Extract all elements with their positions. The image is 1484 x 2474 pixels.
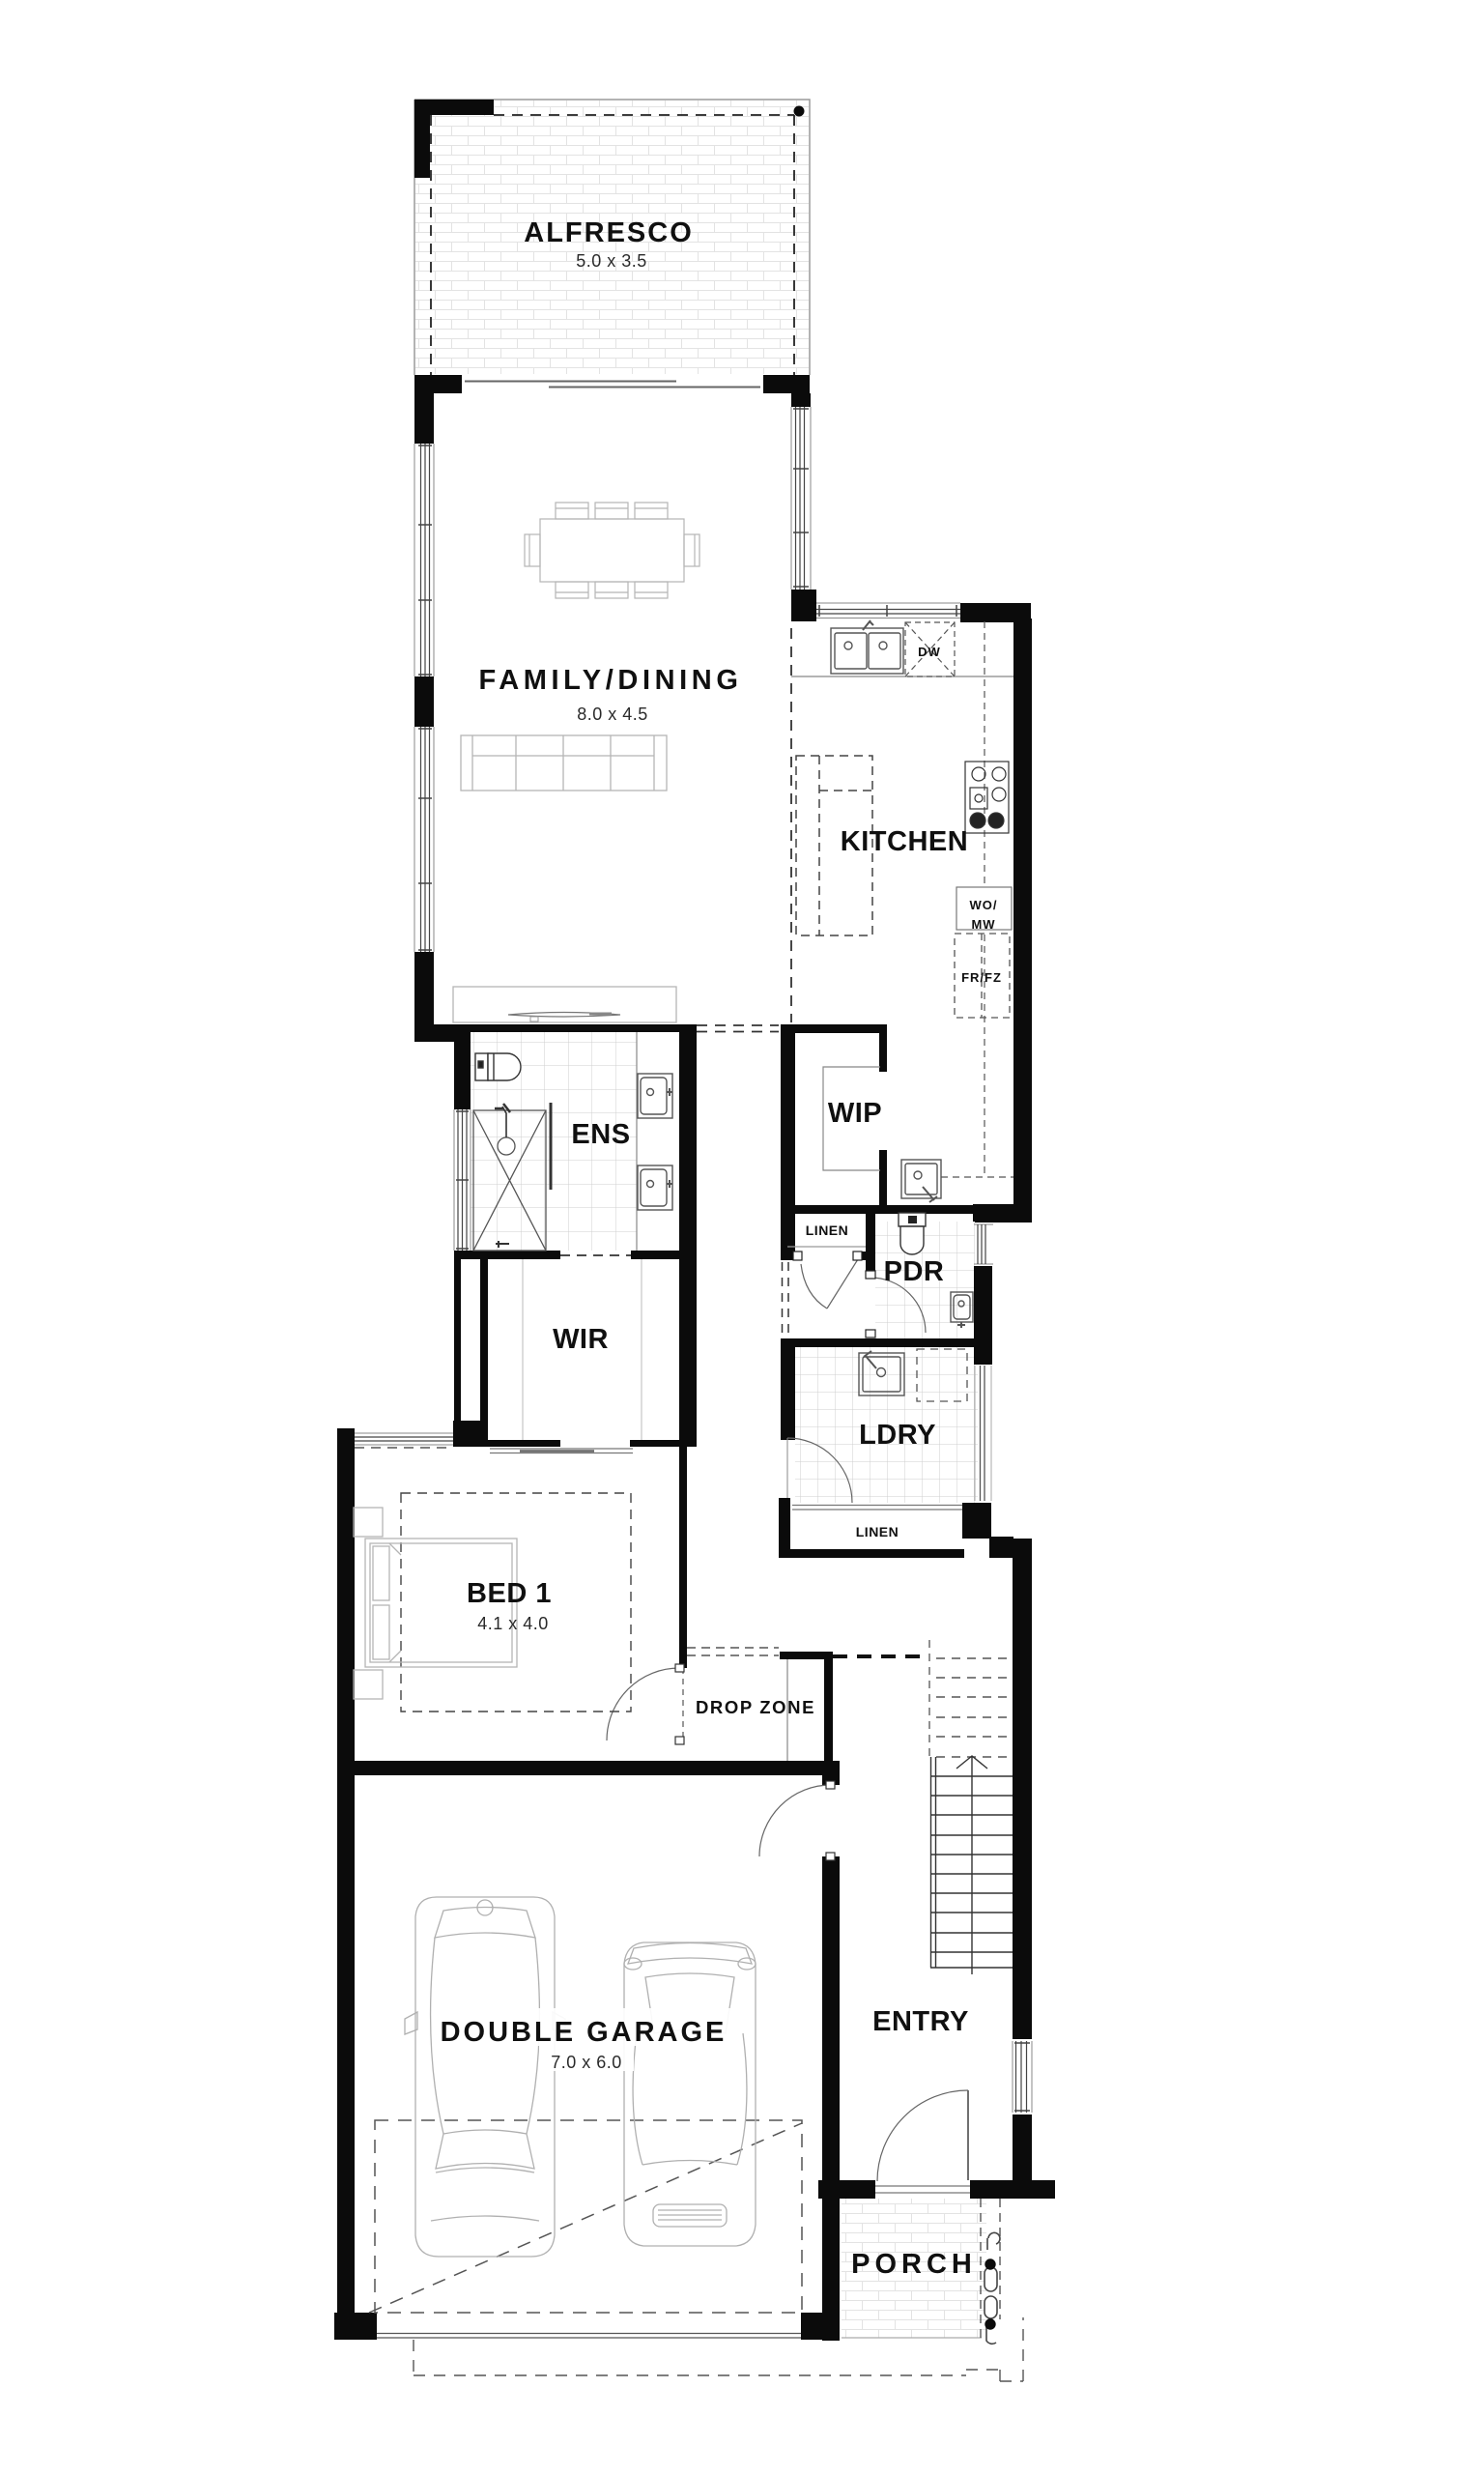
svg-text:PDR: PDR [884,1256,945,1287]
svg-text:WIP: WIP [828,1098,882,1129]
svg-text:LDRY: LDRY [859,1420,936,1451]
svg-text:FAMILY/DINING: FAMILY/DINING [478,665,742,696]
svg-text:LINEN: LINEN [856,1524,899,1539]
svg-text:BED 1: BED 1 [467,1578,552,1609]
svg-text:4.1 x 4.0: 4.1 x 4.0 [477,1614,549,1633]
svg-text:LINEN: LINEN [806,1223,849,1238]
svg-text:DOUBLE GARAGE: DOUBLE GARAGE [441,2017,728,2048]
svg-text:WO/: WO/ [970,898,998,912]
svg-text:KITCHEN: KITCHEN [841,826,968,857]
svg-text:5.0 x 3.5: 5.0 x 3.5 [576,251,647,271]
svg-text:MW: MW [971,917,995,932]
svg-text:WIR: WIR [553,1324,609,1355]
svg-text:ALFRESCO: ALFRESCO [524,217,694,248]
svg-text:ENS: ENS [571,1119,630,1150]
svg-text:PORCH: PORCH [851,2249,977,2280]
svg-text:DROP ZONE: DROP ZONE [696,1697,815,1717]
svg-text:7.0 x 6.0: 7.0 x 6.0 [551,2053,622,2072]
svg-text:FR/FZ: FR/FZ [961,970,1002,985]
svg-text:ENTRY: ENTRY [872,2006,969,2037]
svg-text:DW: DW [918,645,941,659]
svg-text:8.0 x 4.5: 8.0 x 4.5 [577,705,648,724]
